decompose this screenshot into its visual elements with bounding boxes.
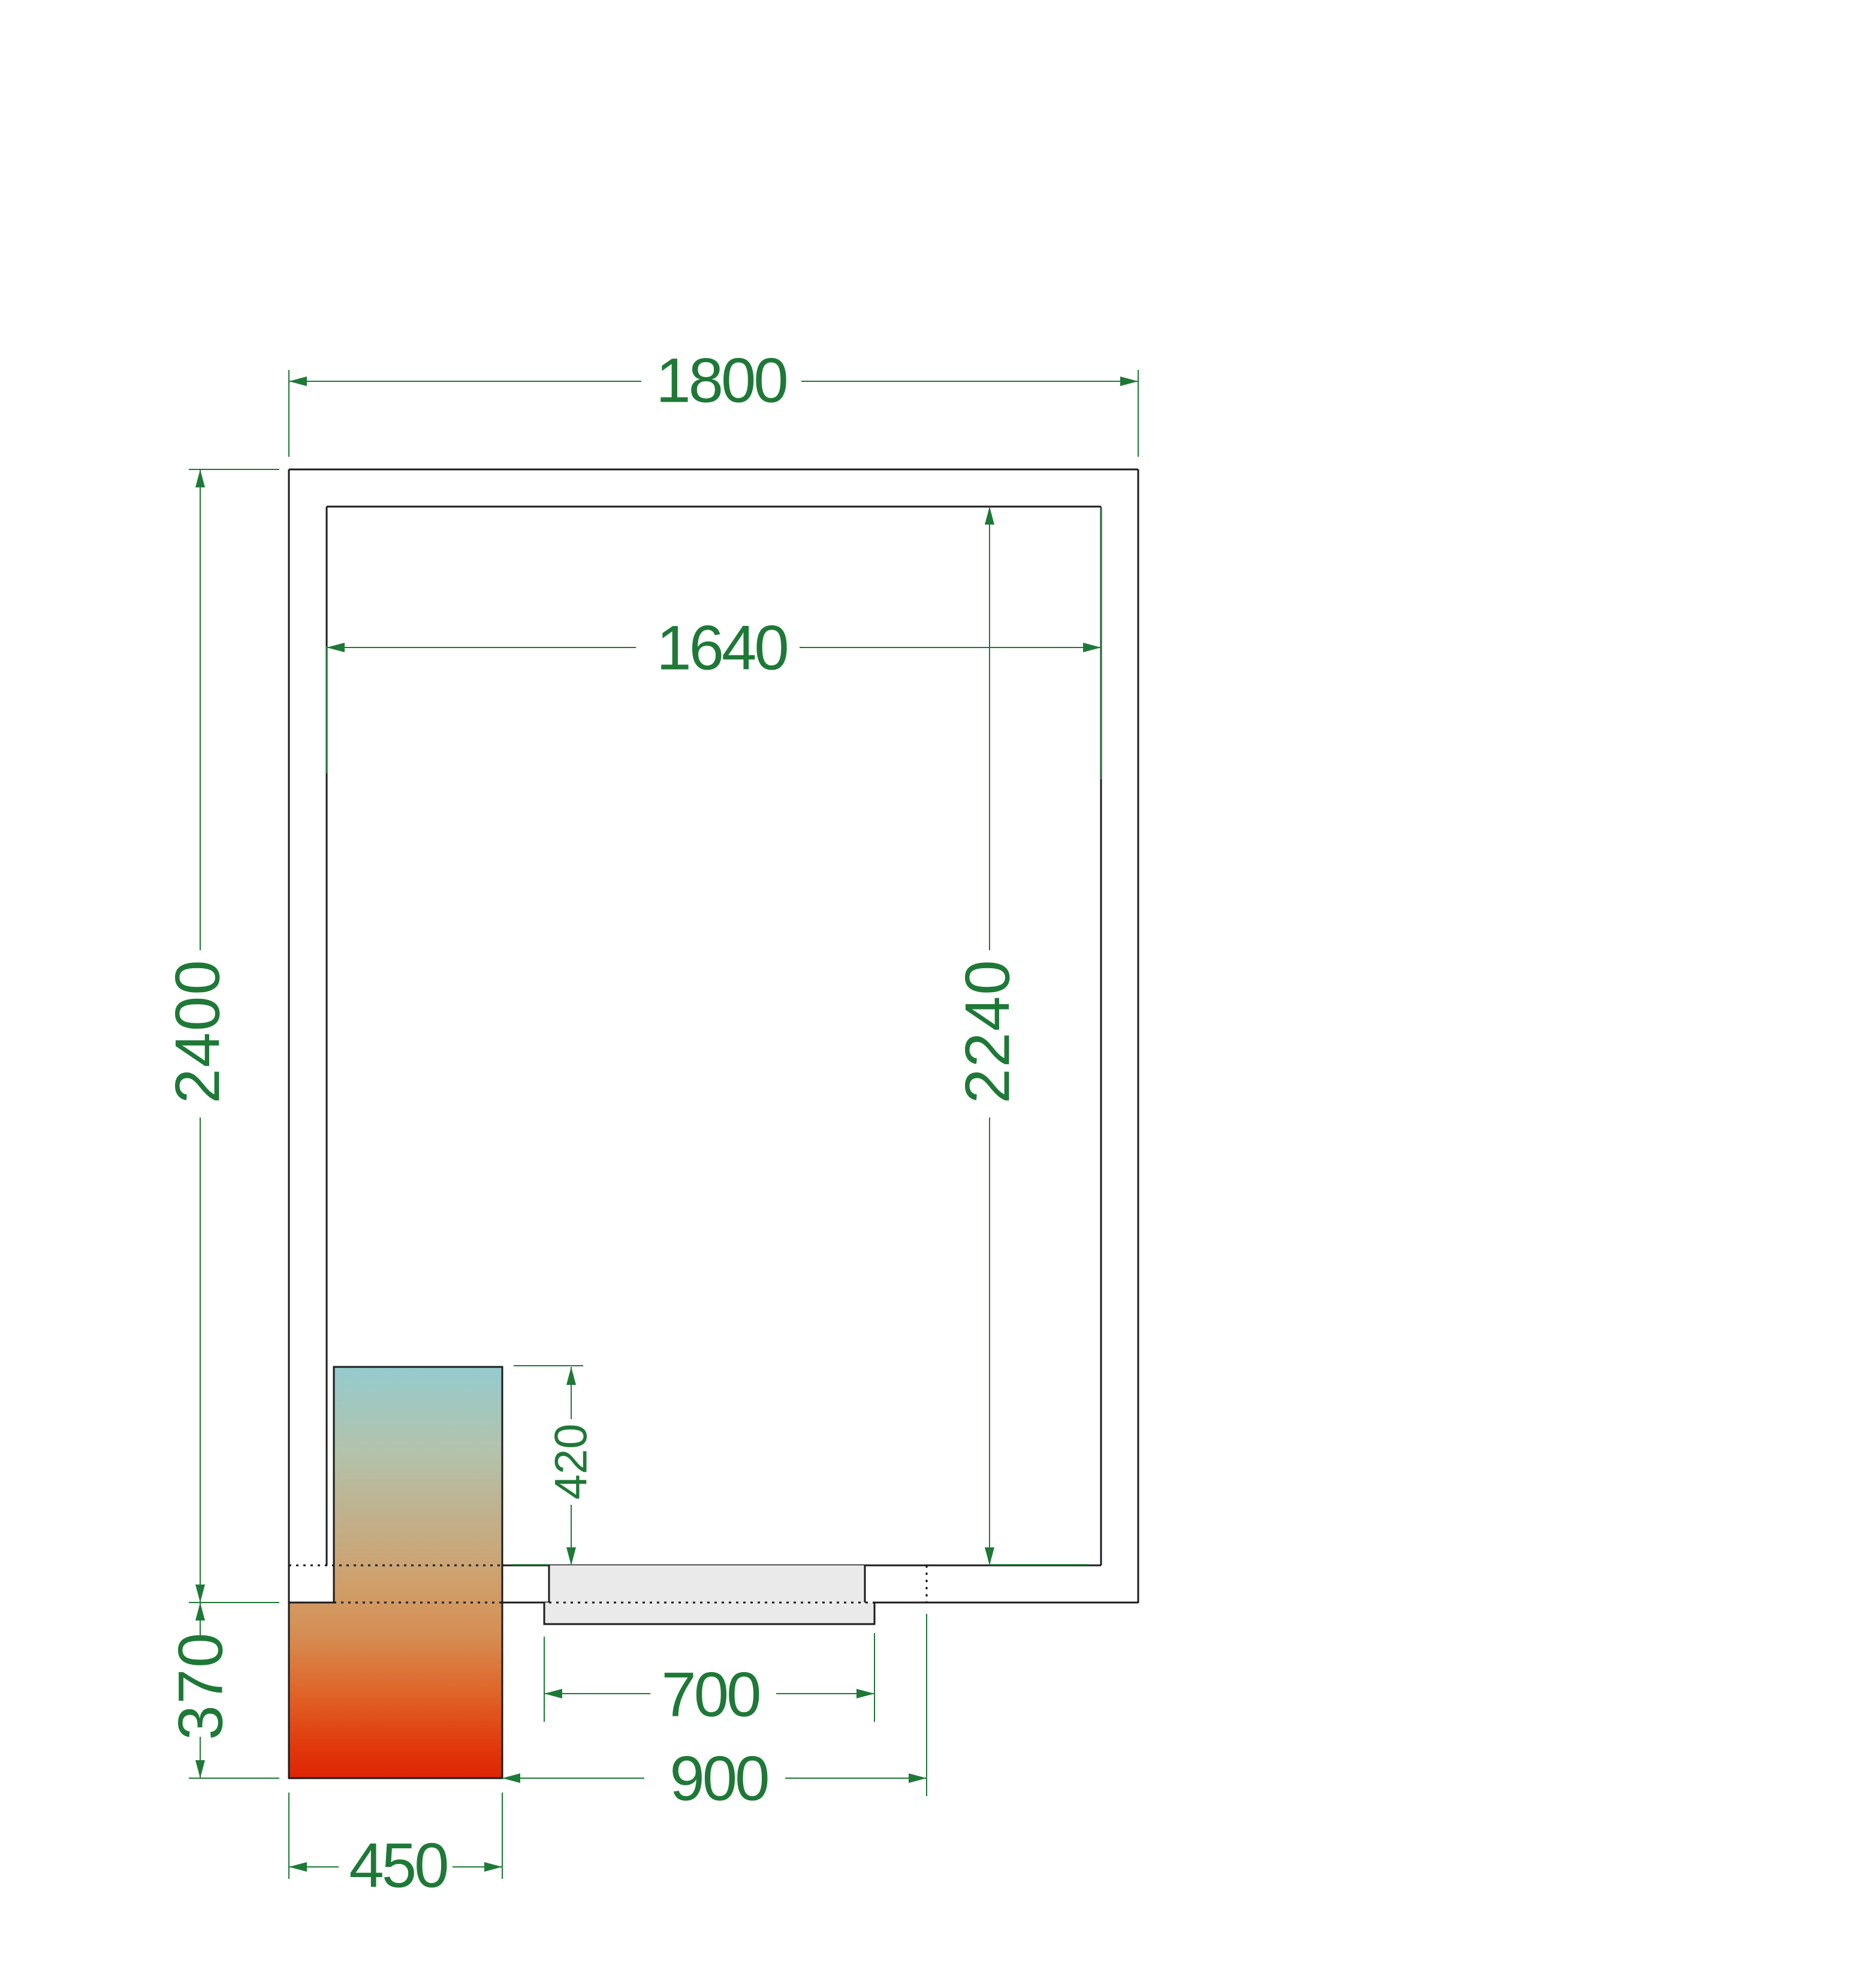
- svg-text:900: 900: [669, 1744, 768, 1814]
- svg-text:700: 700: [661, 1660, 759, 1730]
- svg-text:2240: 2240: [953, 959, 1023, 1104]
- svg-text:450: 450: [349, 1831, 447, 1901]
- svg-text:370: 370: [166, 1631, 236, 1740]
- svg-text:420: 420: [546, 1424, 597, 1500]
- svg-text:1640: 1640: [656, 613, 787, 683]
- svg-text:2400: 2400: [163, 959, 233, 1104]
- svg-text:1800: 1800: [656, 346, 786, 416]
